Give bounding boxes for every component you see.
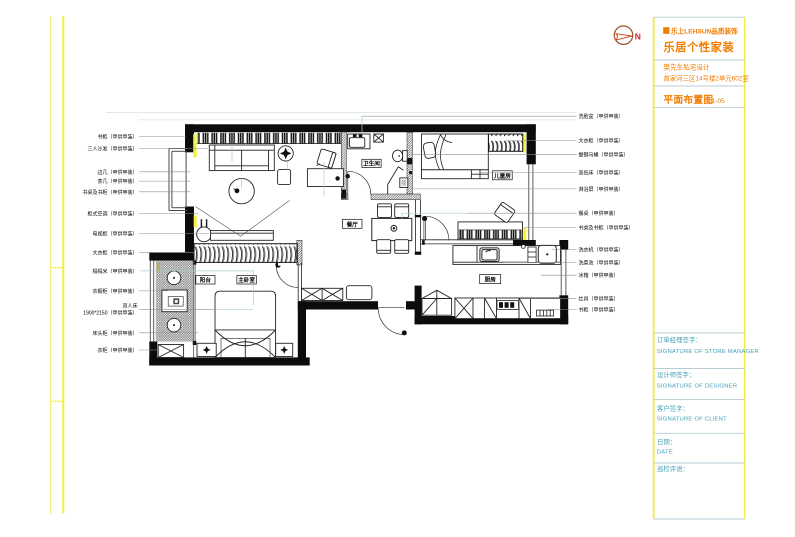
svg-text:衣柜（甲供甲装）: 衣柜（甲供甲装）	[97, 347, 137, 354]
svg-text:日期：: 日期：	[657, 438, 676, 446]
svg-text:榻榻米（甲供甲装）: 榻榻米（甲供甲装）	[92, 268, 137, 275]
svg-text:书桌及书柜（甲供甲装）: 书桌及书柜（甲供甲装）	[579, 224, 634, 231]
svg-text:双人床: 双人床	[122, 302, 137, 309]
svg-text:巡检评语：: 巡检评语：	[657, 464, 689, 473]
svg-text:平面布置图: 平面布置图	[664, 94, 714, 106]
svg-text:淋浴屏（甲供甲装）: 淋浴屏（甲供甲装）	[579, 186, 624, 193]
svg-text:三人沙发（甲供甲装）: 三人沙发（甲供甲装）	[87, 146, 137, 153]
svg-text:洗菜池（甲供甲装）: 洗菜池（甲供甲装）	[579, 259, 624, 266]
svg-text:设计师签字：: 设计师签字：	[657, 370, 695, 379]
svg-text:灶具（甲供甲装）: 灶具（甲供甲装）	[579, 296, 619, 303]
svg-text:餐桌（甲供甲装）: 餐桌（甲供甲装）	[579, 210, 619, 217]
svg-text:SIGNATURE OF DESIGNER: SIGNATURE OF DESIGNER	[657, 384, 737, 390]
svg-text:大衣柜（甲供甲装）: 大衣柜（甲供甲装）	[579, 138, 624, 145]
svg-text:茶几（甲供甲装）: 茶几（甲供甲装）	[97, 178, 137, 185]
svg-text:柜式空调（甲供甲装）: 柜式空调（甲供甲装）	[87, 211, 137, 218]
svg-text:塑钢马桶（甲供甲装）: 塑钢马桶（甲供甲装）	[579, 152, 629, 159]
svg-text:边几（甲供甲装）: 边几（甲供甲装）	[97, 169, 137, 176]
svg-text:卫生间: 卫生间	[363, 160, 380, 168]
svg-text:床头柜（甲供甲装）: 床头柜（甲供甲装）	[92, 330, 137, 337]
svg-text:冰箱（甲供甲装）: 冰箱（甲供甲装）	[579, 272, 619, 279]
svg-text:DATE: DATE	[657, 449, 673, 455]
svg-text:SIGNATURE OF CLIENT: SIGNATURE OF CLIENT	[657, 416, 727, 422]
svg-text:儿童房: 儿童房	[493, 172, 511, 180]
svg-text:书柜（甲供甲装）: 书柜（甲供甲装）	[579, 306, 619, 313]
svg-text:SIGNATURE OF STORE MANAGER: SIGNATURE OF STORE MANAGER	[657, 349, 759, 355]
svg-text:厨房: 厨房	[485, 276, 497, 284]
svg-text:N: N	[635, 31, 641, 41]
svg-text:主卧室: 主卧室	[238, 276, 255, 284]
svg-text:书桌及书柜（甲供甲装）: 书桌及书柜（甲供甲装）	[82, 189, 137, 196]
svg-text:乐居个性家装: 乐居个性家装	[664, 40, 735, 54]
svg-text:乐上LEHSUN品质装饰: 乐上LEHSUN品质装饰	[671, 27, 738, 36]
svg-text:大衣柜（甲供甲装）: 大衣柜（甲供甲装）	[92, 249, 137, 256]
svg-text:衣橱柜（甲供甲装）: 衣橱柜（甲供甲装）	[92, 288, 137, 295]
svg-text:电视柜（甲供甲装）: 电视柜（甲供甲装）	[92, 231, 137, 238]
svg-text:1900*2150（甲供甲装）: 1900*2150（甲供甲装）	[83, 310, 137, 317]
svg-text:餐厅: 餐厅	[346, 220, 359, 228]
svg-text:订单经理签字：: 订单经理签字：	[657, 335, 702, 344]
svg-text:首家河三区14号楼2单元602室: 首家河三区14号楼2单元602室	[664, 74, 750, 83]
svg-text:阳台: 阳台	[200, 276, 212, 284]
svg-text:高低床（甲供甲装）: 高低床（甲供甲装）	[579, 170, 624, 177]
svg-text:洗脸盆（甲供甲装）: 洗脸盆（甲供甲装）	[579, 113, 624, 120]
svg-text:客户签字：: 客户签字：	[657, 404, 689, 413]
svg-text:樊先生私宅设计: 樊先生私宅设计	[664, 63, 711, 72]
svg-text:书柜（甲供甲装）: 书柜（甲供甲装）	[97, 134, 137, 141]
svg-text:洗衣机（甲供甲装）: 洗衣机（甲供甲装）	[579, 247, 624, 254]
svg-text:1-05: 1-05	[712, 98, 726, 105]
